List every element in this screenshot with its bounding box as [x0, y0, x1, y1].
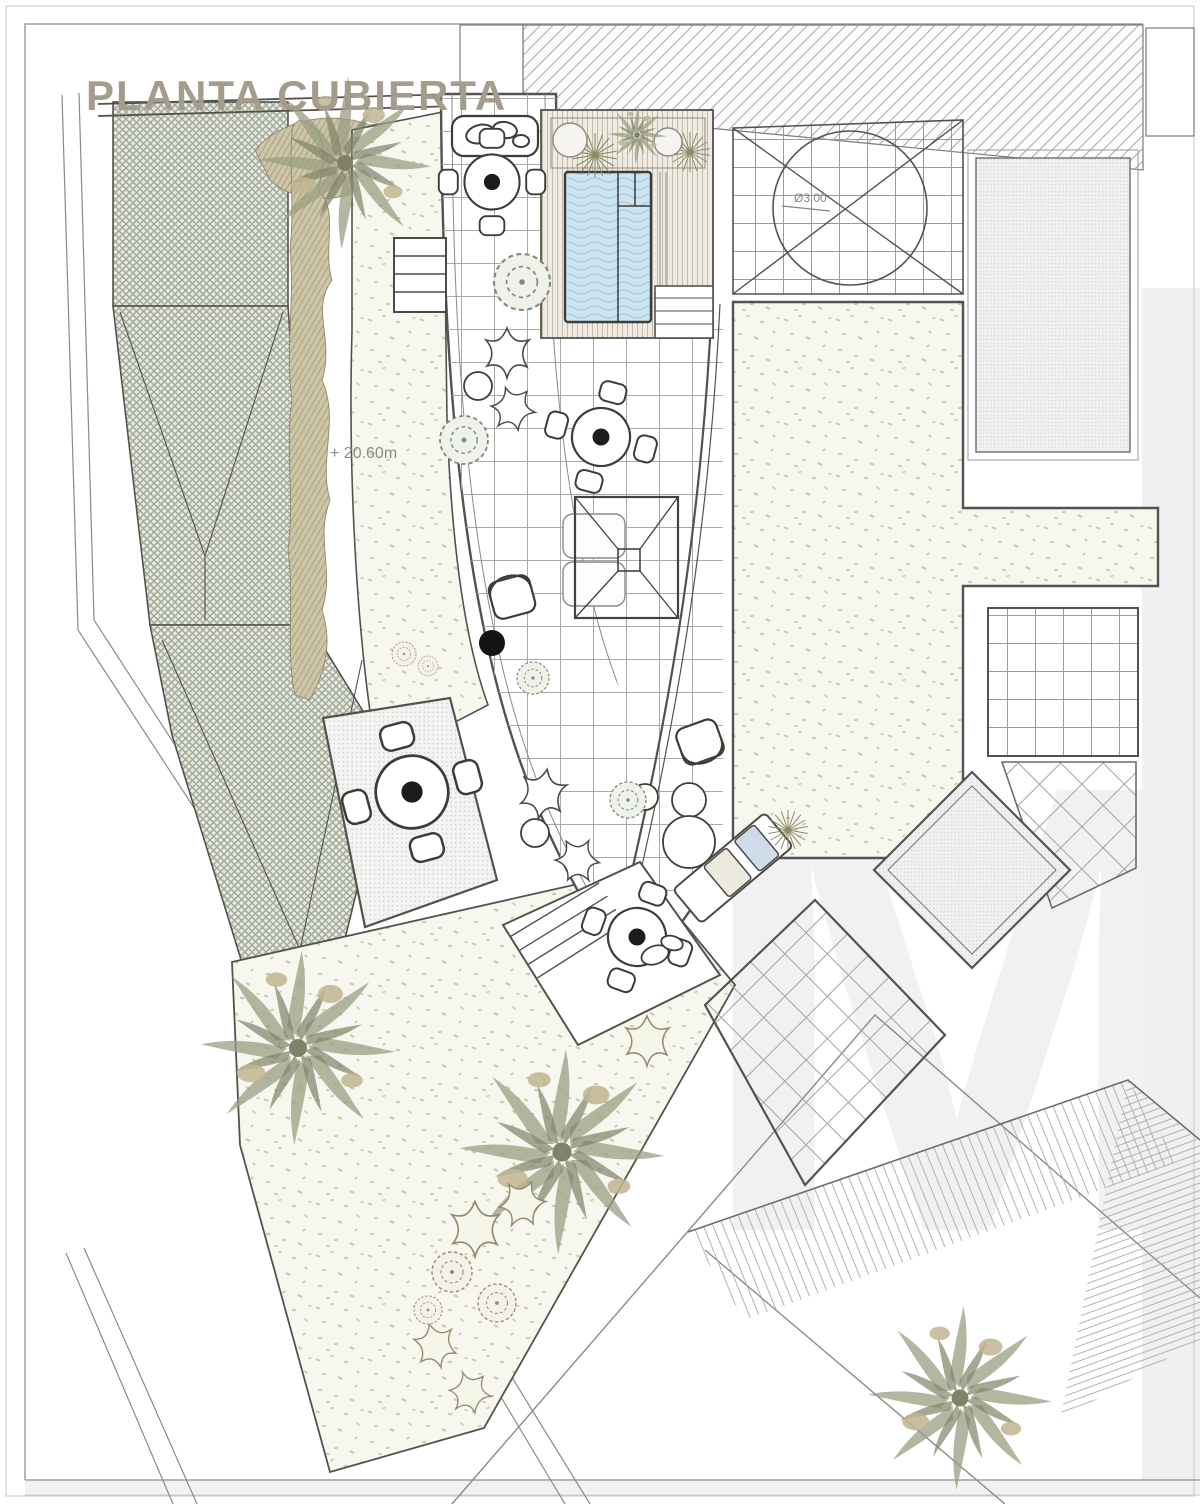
page-title: PLANTA CUBIERTA: [86, 72, 507, 119]
page-bottom-band: [25, 1481, 1200, 1495]
diameter-label: Ø3.00: [794, 191, 827, 205]
bush: [517, 662, 549, 694]
bush: [478, 1284, 516, 1322]
skylight-terrace: Ø3.00: [733, 120, 963, 294]
level-label: + 20.60m: [330, 445, 397, 462]
bush: [440, 416, 488, 464]
crosshatch-roof: [113, 102, 390, 1015]
stairs-upper: [394, 238, 446, 312]
bush: [494, 254, 550, 310]
bush: [414, 1296, 442, 1324]
pool-steps: [655, 286, 713, 338]
plan-sheet: M Ø3.00: [0, 0, 1200, 1504]
pool-area: [541, 105, 713, 338]
bush: [610, 782, 646, 818]
roof-plan-drawing: M Ø3.00: [0, 0, 1200, 1504]
halftone-terrace: [976, 158, 1130, 452]
planter-pot: [553, 123, 587, 157]
planter-pot: [654, 128, 682, 156]
grid-terrace-right: [988, 608, 1138, 756]
black-planter: [479, 630, 505, 656]
bush: [418, 656, 438, 676]
pool: [565, 172, 651, 322]
bush: [432, 1252, 472, 1292]
bush: [392, 642, 416, 666]
